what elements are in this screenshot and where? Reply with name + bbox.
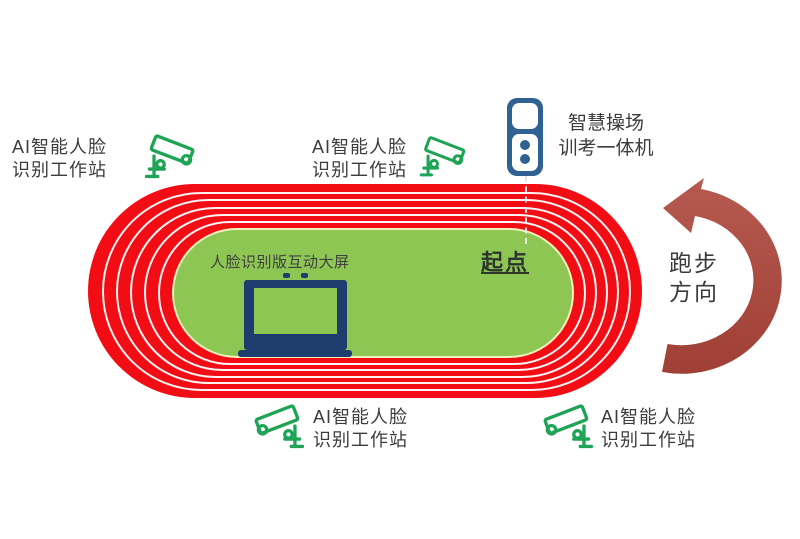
laptop-hinge-dot bbox=[301, 273, 308, 278]
run-direction-line2: 方向 bbox=[669, 278, 719, 307]
laptop-hinge-dot bbox=[283, 273, 290, 278]
laptop-screen bbox=[244, 280, 347, 350]
start-line-connector bbox=[525, 176, 527, 244]
cctv-camera-icon bbox=[543, 402, 599, 452]
station-label-top-left: AI智能人脸 识别工作站 bbox=[12, 136, 107, 182]
kiosk-device-icon bbox=[507, 98, 543, 176]
station-label-top-middle: AI智能人脸 识别工作站 bbox=[312, 136, 407, 182]
run-direction-line1: 跑步 bbox=[669, 249, 719, 278]
laptop-screen-glass bbox=[254, 288, 337, 334]
station-label-line2: 识别工作站 bbox=[312, 159, 407, 182]
kiosk-button-dot bbox=[520, 140, 530, 150]
smart-playground-diagram: 人脸识别版互动大屏 起点 智慧操场 训考一体机 bbox=[0, 0, 800, 539]
kiosk-label: 智慧操场 训考一体机 bbox=[550, 111, 662, 161]
start-point-label: 起点 bbox=[481, 245, 529, 277]
kiosk-label-line2: 训考一体机 bbox=[550, 136, 662, 161]
station-label-line2: 识别工作站 bbox=[601, 429, 696, 452]
station-label-line2: 识别工作站 bbox=[12, 159, 107, 182]
station-label-bottom-right: AI智能人脸 识别工作站 bbox=[601, 406, 696, 452]
run-direction-label: 跑步 方向 bbox=[669, 249, 719, 307]
laptop-icon bbox=[238, 271, 352, 357]
station-label-line1: AI智能人脸 bbox=[12, 136, 107, 159]
station-label-line2: 识别工作站 bbox=[313, 429, 408, 452]
station-label-bottom-left: AI智能人脸 识别工作站 bbox=[313, 406, 408, 452]
station-label-line1: AI智能人脸 bbox=[312, 136, 407, 159]
station-label-line1: AI智能人脸 bbox=[313, 406, 408, 429]
interactive-screen-label: 人脸识别版互动大屏 bbox=[210, 251, 350, 272]
cctv-camera-icon bbox=[254, 402, 310, 452]
station-label-line1: AI智能人脸 bbox=[601, 406, 696, 429]
kiosk-panel bbox=[512, 134, 538, 171]
cctv-camera-icon bbox=[139, 132, 195, 182]
cctv-camera-icon bbox=[414, 134, 466, 180]
laptop-base bbox=[238, 350, 352, 357]
kiosk-screen bbox=[512, 103, 538, 129]
kiosk-button-dot bbox=[520, 154, 530, 164]
kiosk-label-line1: 智慧操场 bbox=[550, 111, 662, 136]
